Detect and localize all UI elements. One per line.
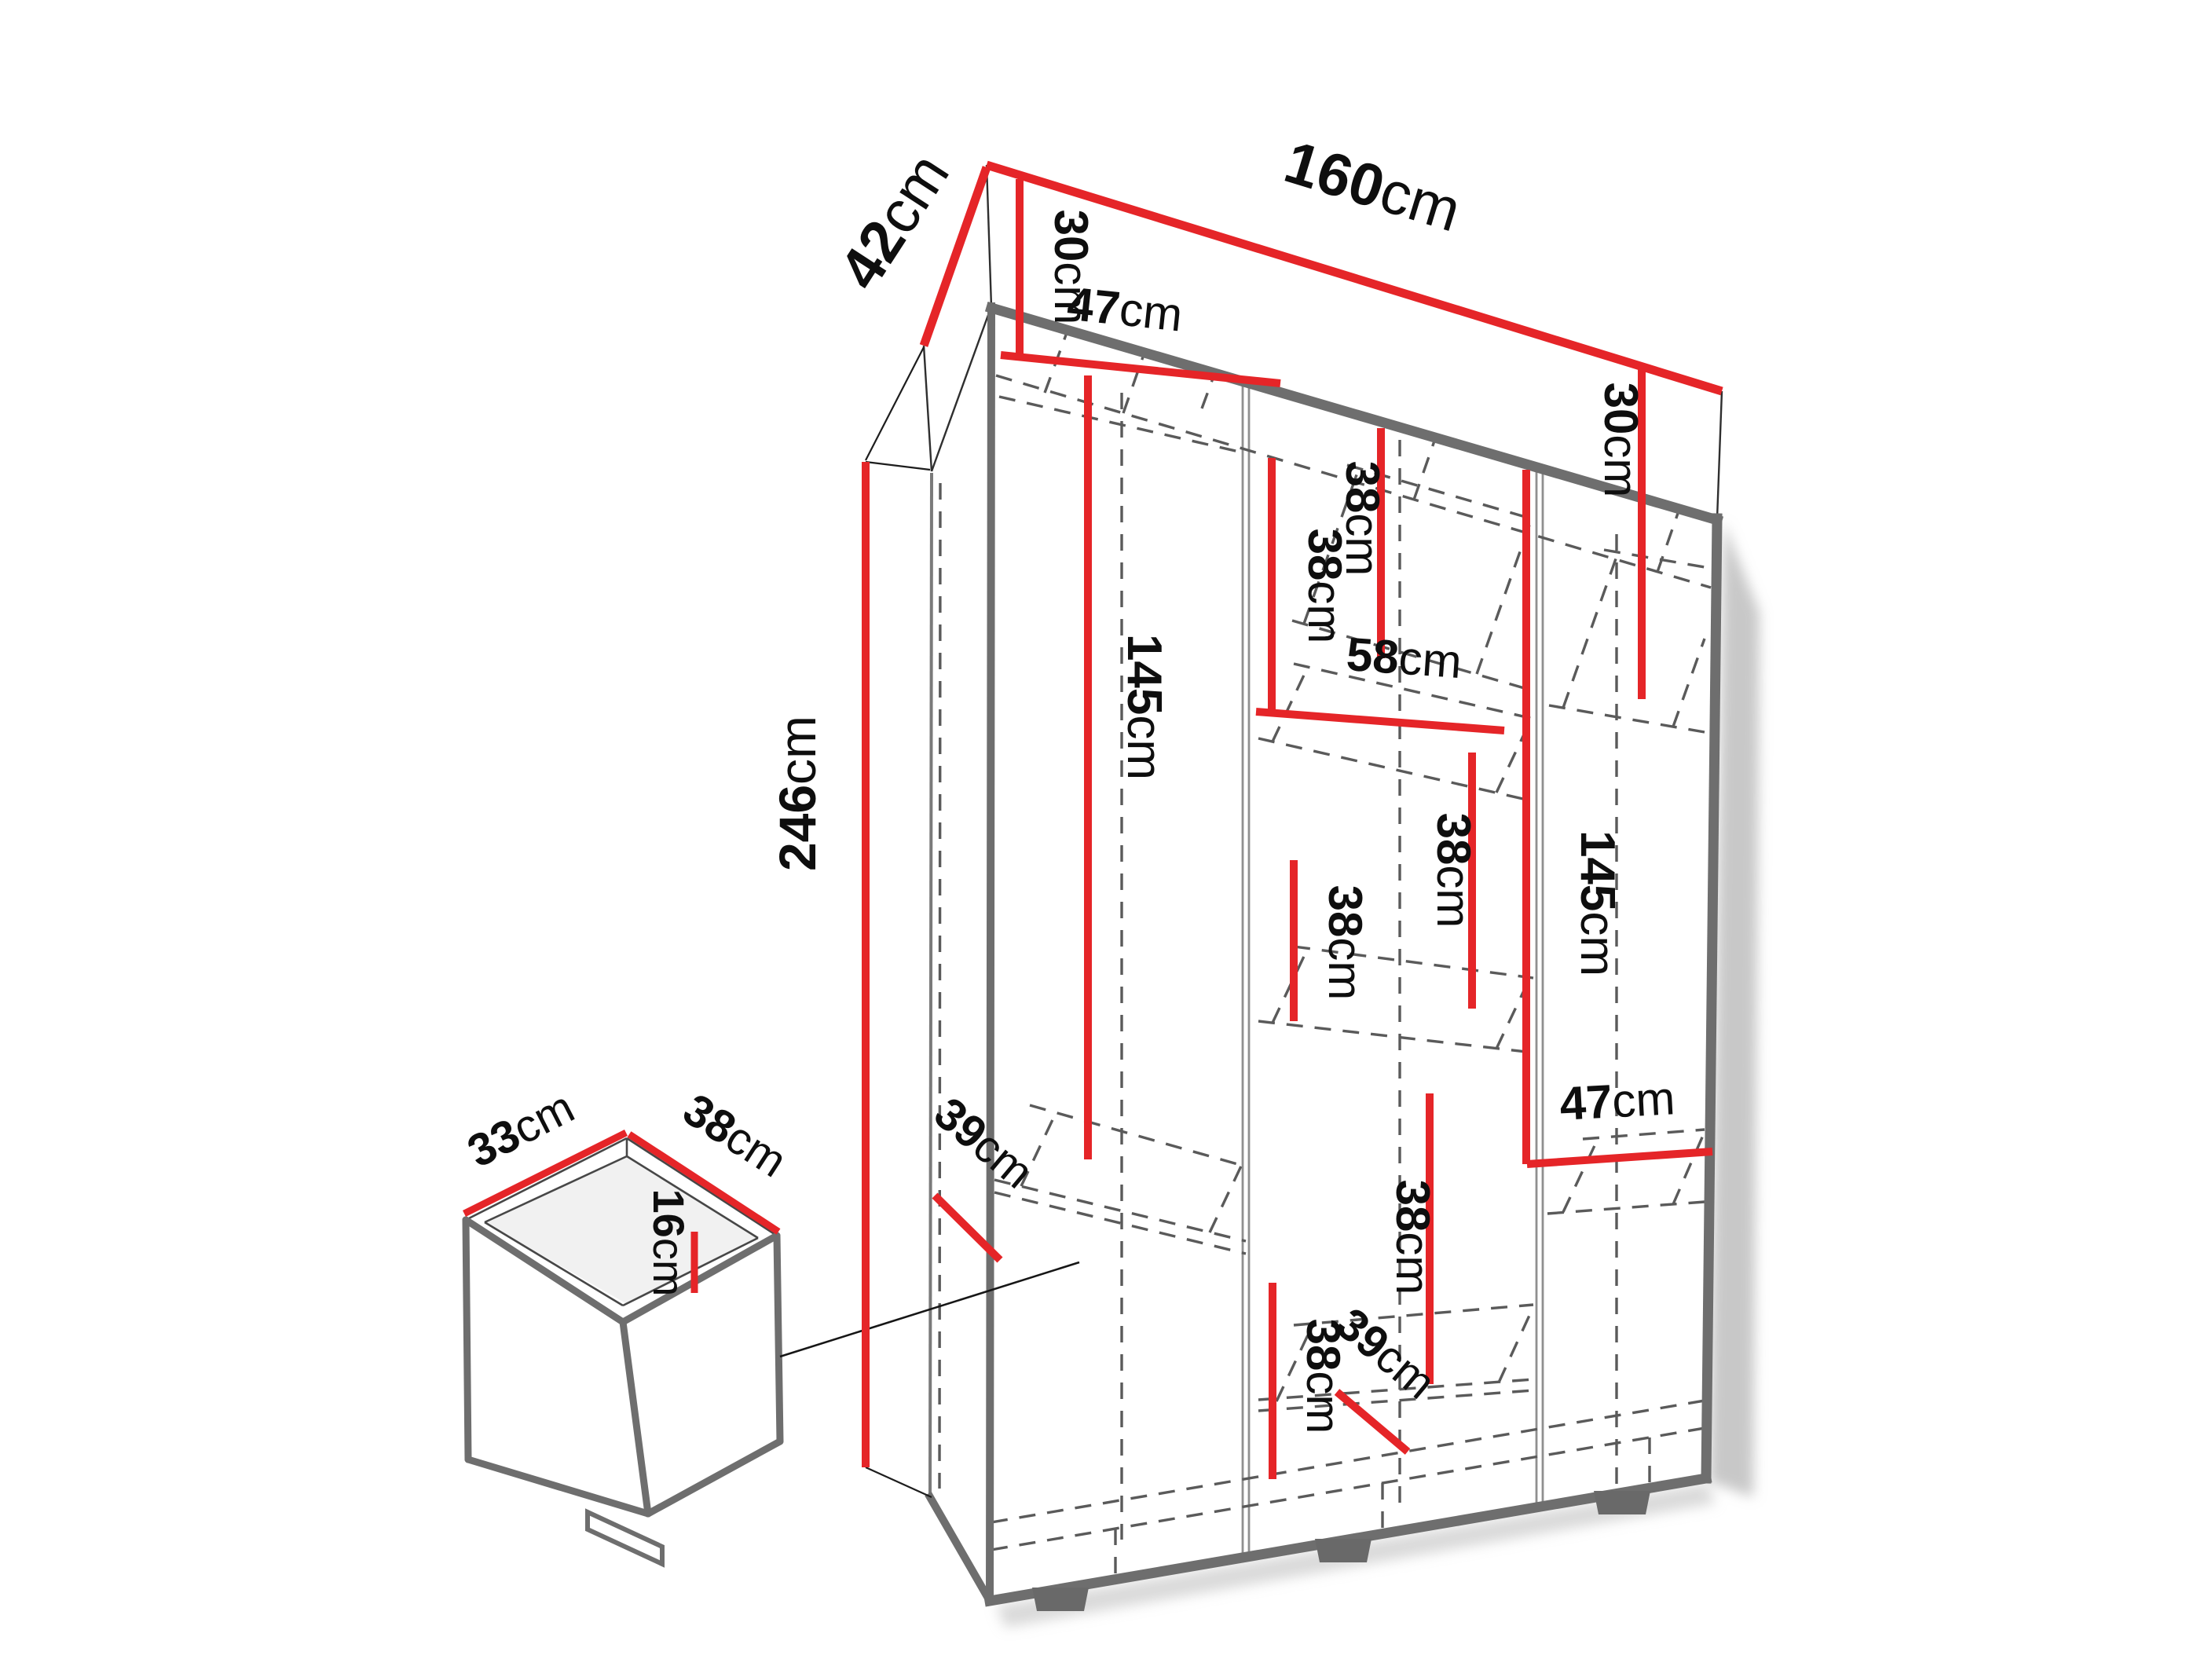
dim-label-height-246: 246cm [768,716,826,871]
drawer-left-vertical [466,1220,468,1459]
dim-label-mid-58: 58cm [1345,628,1463,688]
wardrobe-dimension-diagram: 160cm 42cm 246cm 30cm 47cm 145cm 39cm 38… [0,0,2212,1659]
drawer-right-vertical [777,1236,780,1441]
front-left-edge [990,306,991,1601]
dim-label-right-47: 47cm [1558,1071,1676,1130]
dim-label-drawer-16: 16cm [644,1189,694,1297]
dim-label-right-30: 30cm [1595,383,1647,498]
foot-2 [1315,1539,1372,1562]
dim-label-width-160: 160cm [1277,129,1468,245]
height-extension-bottom [866,1467,932,1497]
left-side-face [930,306,991,1601]
drawer-slide-rail [588,1512,662,1564]
extension-lines [866,347,932,1497]
foot-3 [1594,1491,1650,1514]
dim-label-mid-38-3: 38cm [1427,813,1480,928]
dim-label-depth-42: 42cm [826,142,962,301]
dim-label-mid-38-4: 38cm [1319,885,1372,1001]
dim-label-mid-38-2: 38cm [1298,529,1351,644]
dim-label-mid-38-5: 38cm [1386,1180,1439,1295]
dim-label-left-145: 145cm [1117,634,1171,780]
height-extension-top [866,462,930,470]
dim-label-right-145: 145cm [1570,830,1624,976]
foot-1 [1032,1588,1089,1611]
height-extension-top-diag [866,347,924,460]
rear-left-edge [930,473,932,1497]
